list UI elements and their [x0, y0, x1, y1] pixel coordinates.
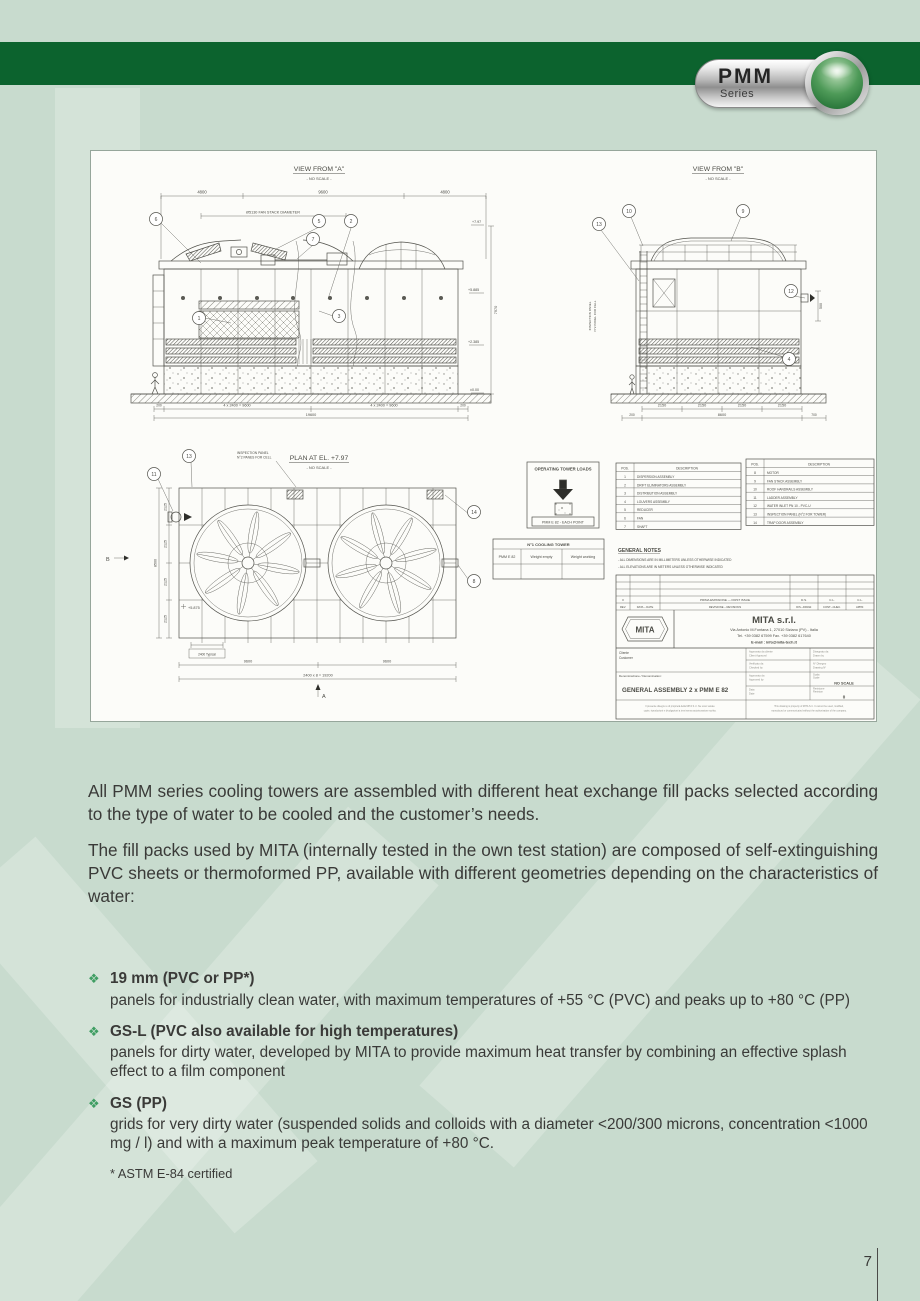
- parts-desc: TRAP DOOR ASSEMBLY: [767, 521, 804, 525]
- general-note: - ALL ELEVATIONS ARE IN METERS UNLESS OT…: [618, 565, 724, 569]
- rev-sign: D.S.: [801, 598, 807, 602]
- parts-pos: 1: [624, 475, 626, 479]
- dim-label: 200: [629, 413, 635, 417]
- rev-number: 0: [622, 598, 624, 602]
- page-number-rule: [877, 1248, 878, 1301]
- parts-pos: 13: [753, 513, 757, 517]
- plan-view: [114, 450, 481, 698]
- diamond-bullet-icon: ❖: [88, 1022, 110, 1082]
- balloon-number: 3: [338, 314, 341, 320]
- balloon-number: 6: [155, 217, 158, 223]
- block-small-label: Checked by: [749, 666, 763, 670]
- company-phone: Tel. +39 0382 67599 Fax. +39 0382 617640: [737, 634, 811, 638]
- parts-desc: MOTOR: [767, 471, 780, 475]
- list-item-body: grids for very dirty water (suspended so…: [110, 1115, 878, 1154]
- legal-text: This drawing is property of MITA S.r.l. …: [774, 705, 844, 708]
- parts-pos: 3: [624, 492, 626, 496]
- dim-label: 9600: [383, 660, 391, 664]
- diamond-bullet-icon: ❖: [88, 1094, 110, 1154]
- dim-label: 8600: [718, 413, 726, 417]
- balloon-number: 4: [788, 357, 791, 363]
- block-small-label: Approved by: [749, 678, 764, 682]
- dim-label: 200: [460, 404, 466, 408]
- block-small-label: Client Approval: [749, 654, 767, 658]
- elevation-label: +5.875: [188, 606, 200, 610]
- plan-noscale: - NO SCALE -: [306, 465, 332, 470]
- green-sphere-icon: [811, 57, 863, 109]
- parts-pos: 5: [624, 508, 626, 512]
- dim-label: 2150: [738, 404, 746, 408]
- balloon-number: 5: [318, 219, 321, 225]
- block-small-label: Approvato da: [749, 674, 765, 678]
- catalog-page: PMM Series: [0, 0, 920, 1301]
- dim-label: 7970: [494, 306, 498, 314]
- dim-label: 2150: [778, 404, 786, 408]
- inspection-note: N°2 PANES FOR CELL: [237, 456, 272, 460]
- elevation-label: ±0.00: [470, 388, 479, 392]
- list-item-title: GS (PP): [110, 1094, 878, 1113]
- parts-table-1-grid: [616, 463, 741, 529]
- view-a-title: VIEW FROM "A": [294, 166, 345, 173]
- balloon-number: 2: [350, 219, 353, 225]
- dim-label: 19600: [306, 413, 317, 417]
- elevation-label: +7.97: [472, 220, 481, 224]
- view-a-elevation: [131, 193, 494, 421]
- list-item-body: panels for industrially clean water, wit…: [110, 991, 878, 1010]
- badge-subtitle: Series: [720, 88, 754, 100]
- dim-label: 4 x 2400 = 9600: [223, 404, 250, 408]
- block-small-label: Verificato da: [749, 662, 764, 666]
- parts-desc: DISPERSION ASSEMBLY: [637, 475, 675, 479]
- legal-text: copie, riproduzioni e divulgazioni a ter…: [644, 710, 717, 713]
- rev-col-label: DIS.–DRAW.: [796, 605, 812, 609]
- parts-pos: 10: [753, 488, 757, 492]
- fan-stack-dim-label: Ø5130 FAN STACK DIAMETER: [246, 211, 300, 215]
- section-arrow-a: A: [322, 694, 326, 700]
- dim-label: 2400 Typical: [198, 653, 216, 657]
- dim-label: 4800: [440, 190, 450, 195]
- general-note: - ALL DIMENSIONS ARE IN MILLIMETERS UNLE…: [618, 558, 732, 562]
- balloon-number: 8: [473, 579, 476, 585]
- view-b-title: VIEW FROM "B": [693, 166, 744, 173]
- list-item-body: panels for dirty water, developed by MIT…: [110, 1043, 878, 1082]
- list-item-title: 19 mm (PVC or PP*): [110, 969, 878, 988]
- block-small-label: N° Disegno: [813, 662, 827, 666]
- block-small-label: Date: [749, 692, 755, 696]
- parts-desc: ROOF HANDRAILS ASSEMBLY: [767, 488, 814, 492]
- scale-value: NO SCALE: [834, 682, 854, 686]
- block-small-label: Data: [749, 688, 755, 692]
- rev-sign: C.L.: [829, 598, 835, 602]
- rev-col-label: CONT.–CHEC.: [823, 605, 841, 609]
- legal-text: reproduced or communicated without the a…: [771, 710, 847, 713]
- general-notes-title: GENERAL NOTES: [618, 548, 662, 554]
- parts-pos: 9: [754, 479, 756, 483]
- badge-title: PMM: [718, 65, 773, 89]
- parts-pos: 7: [624, 525, 626, 529]
- dim-label: 4 x 2400 = 9600: [370, 404, 397, 408]
- parts-pos: 11: [753, 496, 757, 500]
- loads-box: [527, 462, 599, 528]
- sheet-number: 0: [843, 695, 846, 700]
- dim-label: 2125: [164, 540, 168, 548]
- parts-desc: FAN: [637, 517, 644, 521]
- dim-label: 2125: [164, 503, 168, 511]
- parts-desc: WATER INLET PN 10 - PVC-U: [767, 504, 811, 508]
- balloon-number: 10: [626, 209, 632, 215]
- dim-label: 2125: [164, 578, 168, 586]
- parts-header: POS.: [751, 463, 759, 467]
- dim-label: 9600: [318, 190, 328, 195]
- company-address: Via Antonio M.Fontana 1, 27010 Siziano (…: [730, 628, 819, 632]
- balloon-number: 14: [471, 510, 477, 516]
- parts-pos: 2: [624, 483, 626, 487]
- balloon-number: 11: [151, 472, 156, 478]
- rev-description: PRIMA EMISSIONE — FIRST ISSUE: [700, 598, 750, 602]
- footnote: * ASTM E-84 certified: [88, 1166, 878, 1181]
- company-email: E-mail : info@mita-tech.it: [751, 641, 797, 645]
- loads-box-title: OPERATING TOWER LOADS: [534, 467, 591, 472]
- parts-desc: REDUCER: [637, 508, 653, 512]
- dim-label: 2400 x 8 = 19200: [303, 674, 332, 678]
- parts-pos: 4: [624, 500, 626, 504]
- balloon-number: 1: [198, 316, 201, 322]
- body-copy: All PMM series cooling towers are assemb…: [88, 780, 878, 1181]
- legal-text: Il presente disegno è di proprietà della…: [645, 705, 715, 708]
- inspection-note: INSPECTION PANEL: [588, 301, 592, 330]
- list-item: ❖ GS (PP) grids for very dirty water (su…: [88, 1094, 878, 1154]
- rev-sign: C.L.: [857, 598, 863, 602]
- loads-box-label: PMM E 82 - EACH POINT: [542, 520, 585, 524]
- inspection-note: N°2 PANEL FOR CELL: [593, 300, 597, 331]
- parts-header: POS.: [621, 467, 629, 471]
- parts-header: DESCRIPTION: [808, 463, 830, 467]
- fill-pack-list: ❖ 19 mm (PVC or PP*) panels for industri…: [88, 969, 878, 1180]
- parts-desc: FAN STACK ASSEMBLY: [767, 479, 803, 483]
- elevation-label: +2.385: [468, 340, 479, 344]
- dim-label: 2150: [658, 404, 666, 408]
- parts-pos: 8: [754, 471, 756, 475]
- diamond-bullet-icon: ❖: [88, 969, 110, 1010]
- weight-table-row-label: PMM E 82: [499, 555, 516, 559]
- balloon-number: 12: [788, 289, 794, 295]
- dim-label: 200: [156, 404, 162, 408]
- dim-label: 2150: [698, 404, 706, 408]
- block-small-label: Revision: [813, 690, 824, 694]
- denomination-value: GENERAL ASSEMBLY 2 x PMM E 82: [622, 687, 729, 694]
- rev-col-label: REVISIONE – REVISIONS: [709, 605, 741, 609]
- parts-desc: DRIFT ELIMINATORS ASSEMBLY: [637, 483, 687, 487]
- plan-title: PLAN AT EL. +7.97: [290, 455, 349, 462]
- company-name: MITA s.r.l.: [752, 615, 796, 626]
- weight-table-title: N°1 COOLING TOWER: [527, 542, 570, 547]
- list-item: ❖ 19 mm (PVC or PP*) panels for industri…: [88, 969, 878, 1010]
- rev-col-label: REV.: [620, 605, 626, 609]
- section-arrow-b: B: [106, 557, 110, 563]
- block-small-label: Drawn by: [813, 654, 825, 658]
- parts-header: DESCRIPTION: [676, 467, 698, 471]
- general-assembly-drawing: VIEW FROM "A" - NO SCALE - 4800 9600 480…: [91, 151, 876, 721]
- mita-logo: MITA: [636, 626, 655, 635]
- client-label: Customer: [619, 656, 634, 660]
- denomination-label: Denominazione / Denomination:: [619, 674, 662, 678]
- paragraph-fill-packs: The fill packs used by MITA (internally …: [88, 839, 878, 908]
- dim-label: 700: [811, 413, 817, 417]
- list-item: ❖ GS-L (PVC also available for high temp…: [88, 1022, 878, 1082]
- client-label: Cliente: [619, 651, 629, 655]
- dim-label: 9600: [244, 660, 252, 664]
- title-block-grid: [616, 575, 874, 719]
- balloon-number: 9: [742, 209, 745, 215]
- view-a-noscale: - NO SCALE -: [306, 176, 332, 181]
- weight-table-col: Weight working: [571, 555, 596, 559]
- block-small-label: Scale: [813, 676, 820, 680]
- parts-pos: 6: [624, 517, 626, 521]
- technical-drawing-panel: VIEW FROM "A" - NO SCALE - 4800 9600 480…: [90, 150, 877, 722]
- block-small-label: Disegnato da: [813, 650, 829, 654]
- parts-desc: SHAFT: [637, 525, 648, 529]
- parts-desc: LADDER ASSEMBLY: [767, 496, 798, 500]
- dim-label: 2125: [164, 615, 168, 623]
- weight-table-col: Weight empty: [531, 555, 553, 559]
- parts-desc: DISTRIBUTION ASSEMBLY: [637, 492, 678, 496]
- parts-pos: 12: [753, 504, 757, 508]
- dim-label: 8500: [154, 559, 158, 567]
- rev-col-label: APPR.: [856, 605, 864, 609]
- block-small-label: Approvato da cliente: [749, 650, 773, 654]
- block-small-label: Drawing N°: [813, 666, 826, 670]
- view-b-elevation: [593, 205, 827, 422]
- parts-desc: INSPECTION PANEL (N°2 FOR TOWER): [767, 513, 826, 517]
- list-item-title: GS-L (PVC also available for high temper…: [110, 1022, 878, 1041]
- pmm-series-badge: PMM Series: [695, 50, 873, 116]
- view-b-noscale: - NO SCALE -: [705, 176, 731, 181]
- balloon-number: 7: [312, 237, 315, 243]
- page-number: 7: [864, 1253, 872, 1270]
- rev-col-label: DATA – DATE: [637, 605, 654, 609]
- elevation-label: +5.885: [468, 288, 479, 292]
- dim-label: 4800: [197, 190, 207, 195]
- inspection-note: INSPECTION PANEL: [237, 451, 269, 455]
- balloon-number: 13: [596, 222, 602, 228]
- balloon-number: 13: [186, 454, 192, 460]
- dim-label: 500: [819, 303, 823, 309]
- paragraph-intro: All PMM series cooling towers are assemb…: [88, 780, 878, 826]
- parts-desc: LOUVERS ASSEMBLY: [637, 500, 671, 504]
- parts-pos: 14: [753, 521, 757, 525]
